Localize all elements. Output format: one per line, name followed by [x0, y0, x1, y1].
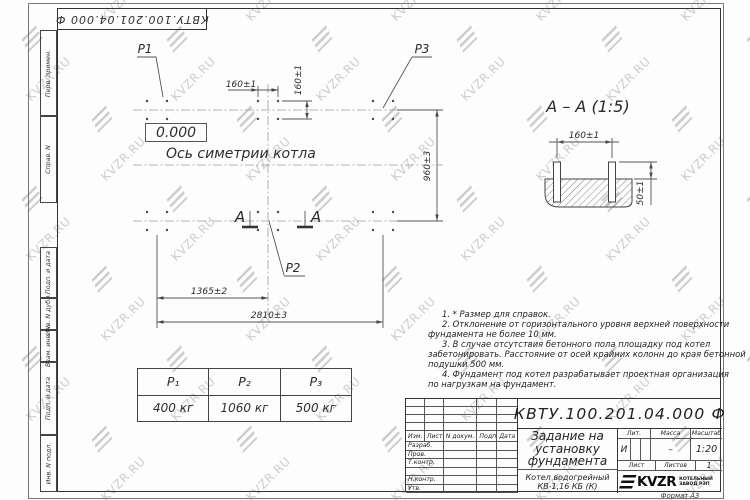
loads-table-value: 500 кг — [280, 396, 351, 422]
loads-table: P₁ P₂ P₃ 400 кг 1060 кг 500 кг — [137, 368, 352, 422]
tb-product-line: Котел водогрейный — [526, 473, 610, 482]
note-line: забетонировать. Расстояние от осей крайн… — [428, 349, 746, 359]
section-view-title: А – А (1:5) — [545, 97, 629, 116]
tb-col-list: Лист — [425, 431, 444, 442]
title-block-signatures: Изм. Лист N докум. Подп. Дата Разраб. Пр… — [406, 399, 518, 493]
tb-lit-header: Лит. — [618, 429, 651, 439]
section-letter-right: А — [310, 208, 321, 226]
tb-row-tkontr: Т.контр. — [406, 459, 444, 468]
loads-table-value-row: 400 кг 1060 кг 500 кг — [138, 395, 351, 422]
tb-col-podp: Подп. — [477, 431, 497, 442]
tb-row-prov: Пров. — [406, 451, 444, 460]
drawing-sheet: KVZR.RUKVZR.RUKVZR.RUKVZR.RUKVZR.RUKVZR.… — [0, 0, 750, 500]
note-line: по нагрузкам на фундамент. — [428, 379, 746, 389]
dim-960-label: 960±3 — [423, 151, 433, 182]
tb-sheets-value: 1 — [696, 461, 722, 471]
tb-logo-cell: KVZR КОТЕЛЬНЫЙ ЗАВОД РЭП — [618, 471, 722, 493]
tb-row-empty — [406, 468, 444, 477]
elevation-value: 0.000 — [156, 125, 196, 141]
note-line: 3. В случае отсутствия бетонного пола пл… — [428, 339, 746, 349]
section-dim-160-label: 160±1 — [569, 131, 599, 141]
tb-doc-number: КВТУ.100.201.04.000 Ф — [518, 399, 722, 429]
title-block: Изм. Лист N докум. Подп. Дата Разраб. Пр… — [405, 398, 721, 492]
tb-col-ndocum: N докум. — [444, 431, 478, 442]
tb-product-line: КВ-1,16 КБ (К) — [537, 482, 597, 491]
tb-mass-header: Масса — [651, 429, 691, 439]
note-line: 2. Отклонение от горизонтального уровня … — [428, 319, 746, 329]
tb-col-izm: Изм. — [406, 431, 425, 442]
tb-sheet-label: Лист — [618, 461, 656, 471]
tb-scale-value: 1:20 — [691, 439, 722, 461]
tb-row-razrab: Разраб. — [406, 442, 444, 451]
dim-160h-label: 160±1 — [226, 80, 256, 90]
tb-col-data: Дата — [497, 431, 517, 442]
tb-sheets-label: Листов — [656, 461, 696, 471]
loads-table-header-row: P₁ P₂ P₃ — [138, 369, 351, 395]
tb-title-line: фундамента — [528, 455, 607, 468]
loads-table-header: P₂ — [208, 369, 279, 395]
tb-mass-value: – — [651, 439, 691, 461]
loads-table-value: 400 кг — [138, 396, 208, 422]
note-line: 1. * Размер для справок. — [428, 309, 746, 319]
tb-title-line: Задание на — [531, 430, 604, 443]
tb-row-nkontr: Н.контр. — [406, 476, 444, 485]
dim-1365-label: 1365±2 — [191, 287, 227, 297]
plan-dimension-lines — [137, 57, 443, 328]
loads-table-header: P₁ — [138, 369, 208, 395]
tb-scale-header: Масштаб — [691, 429, 722, 439]
title-block-right: Лит. Масса Масштаб И – 1:20 Лист Листов … — [618, 429, 722, 493]
section-dim-50-label: 50±1 — [636, 181, 646, 206]
note-line: фундамента не более 10 мм. — [428, 329, 746, 339]
note-line: 4. Фундамент под котел разрабатывает про… — [428, 369, 746, 379]
dim-160v-label: 160±1 — [294, 65, 304, 95]
dim-2810-label: 2810±3 — [251, 311, 287, 321]
loads-table-header: P₃ — [280, 369, 351, 395]
load-point-p2: P2 — [286, 261, 301, 275]
section-letter-left: А — [234, 208, 245, 226]
load-point-p1: P1 — [138, 42, 153, 56]
elevation-mark-box: 0.000 — [145, 123, 207, 142]
kvzr-logo-subtext: КОТЕЛЬНЫЙ ЗАВОД РЭП — [679, 477, 713, 487]
plan-anchor-bolts — [146, 100, 394, 231]
tb-drawing-title: Задание на установку фундамента — [518, 429, 618, 469]
notes-block: 1. * Размер для справок. 2. Отклонение о… — [428, 309, 746, 389]
tb-product-name: Котел водогрейный КВ-1,16 КБ (К) — [518, 469, 618, 493]
note-line: подушки 500 мм. — [428, 359, 746, 369]
tb-row-utv: Утв. — [406, 485, 444, 494]
kvzr-logo-text: KVZR — [637, 474, 676, 490]
tb-lit-value: И — [618, 439, 631, 461]
format-label: Формат А3 — [600, 492, 750, 500]
loads-table-value: 1060 кг — [208, 396, 279, 422]
kvzr-logo-icon — [619, 475, 637, 490]
load-point-p3: P3 — [415, 42, 430, 56]
boiler-axis-label: Ось симетрии котла — [166, 146, 316, 162]
